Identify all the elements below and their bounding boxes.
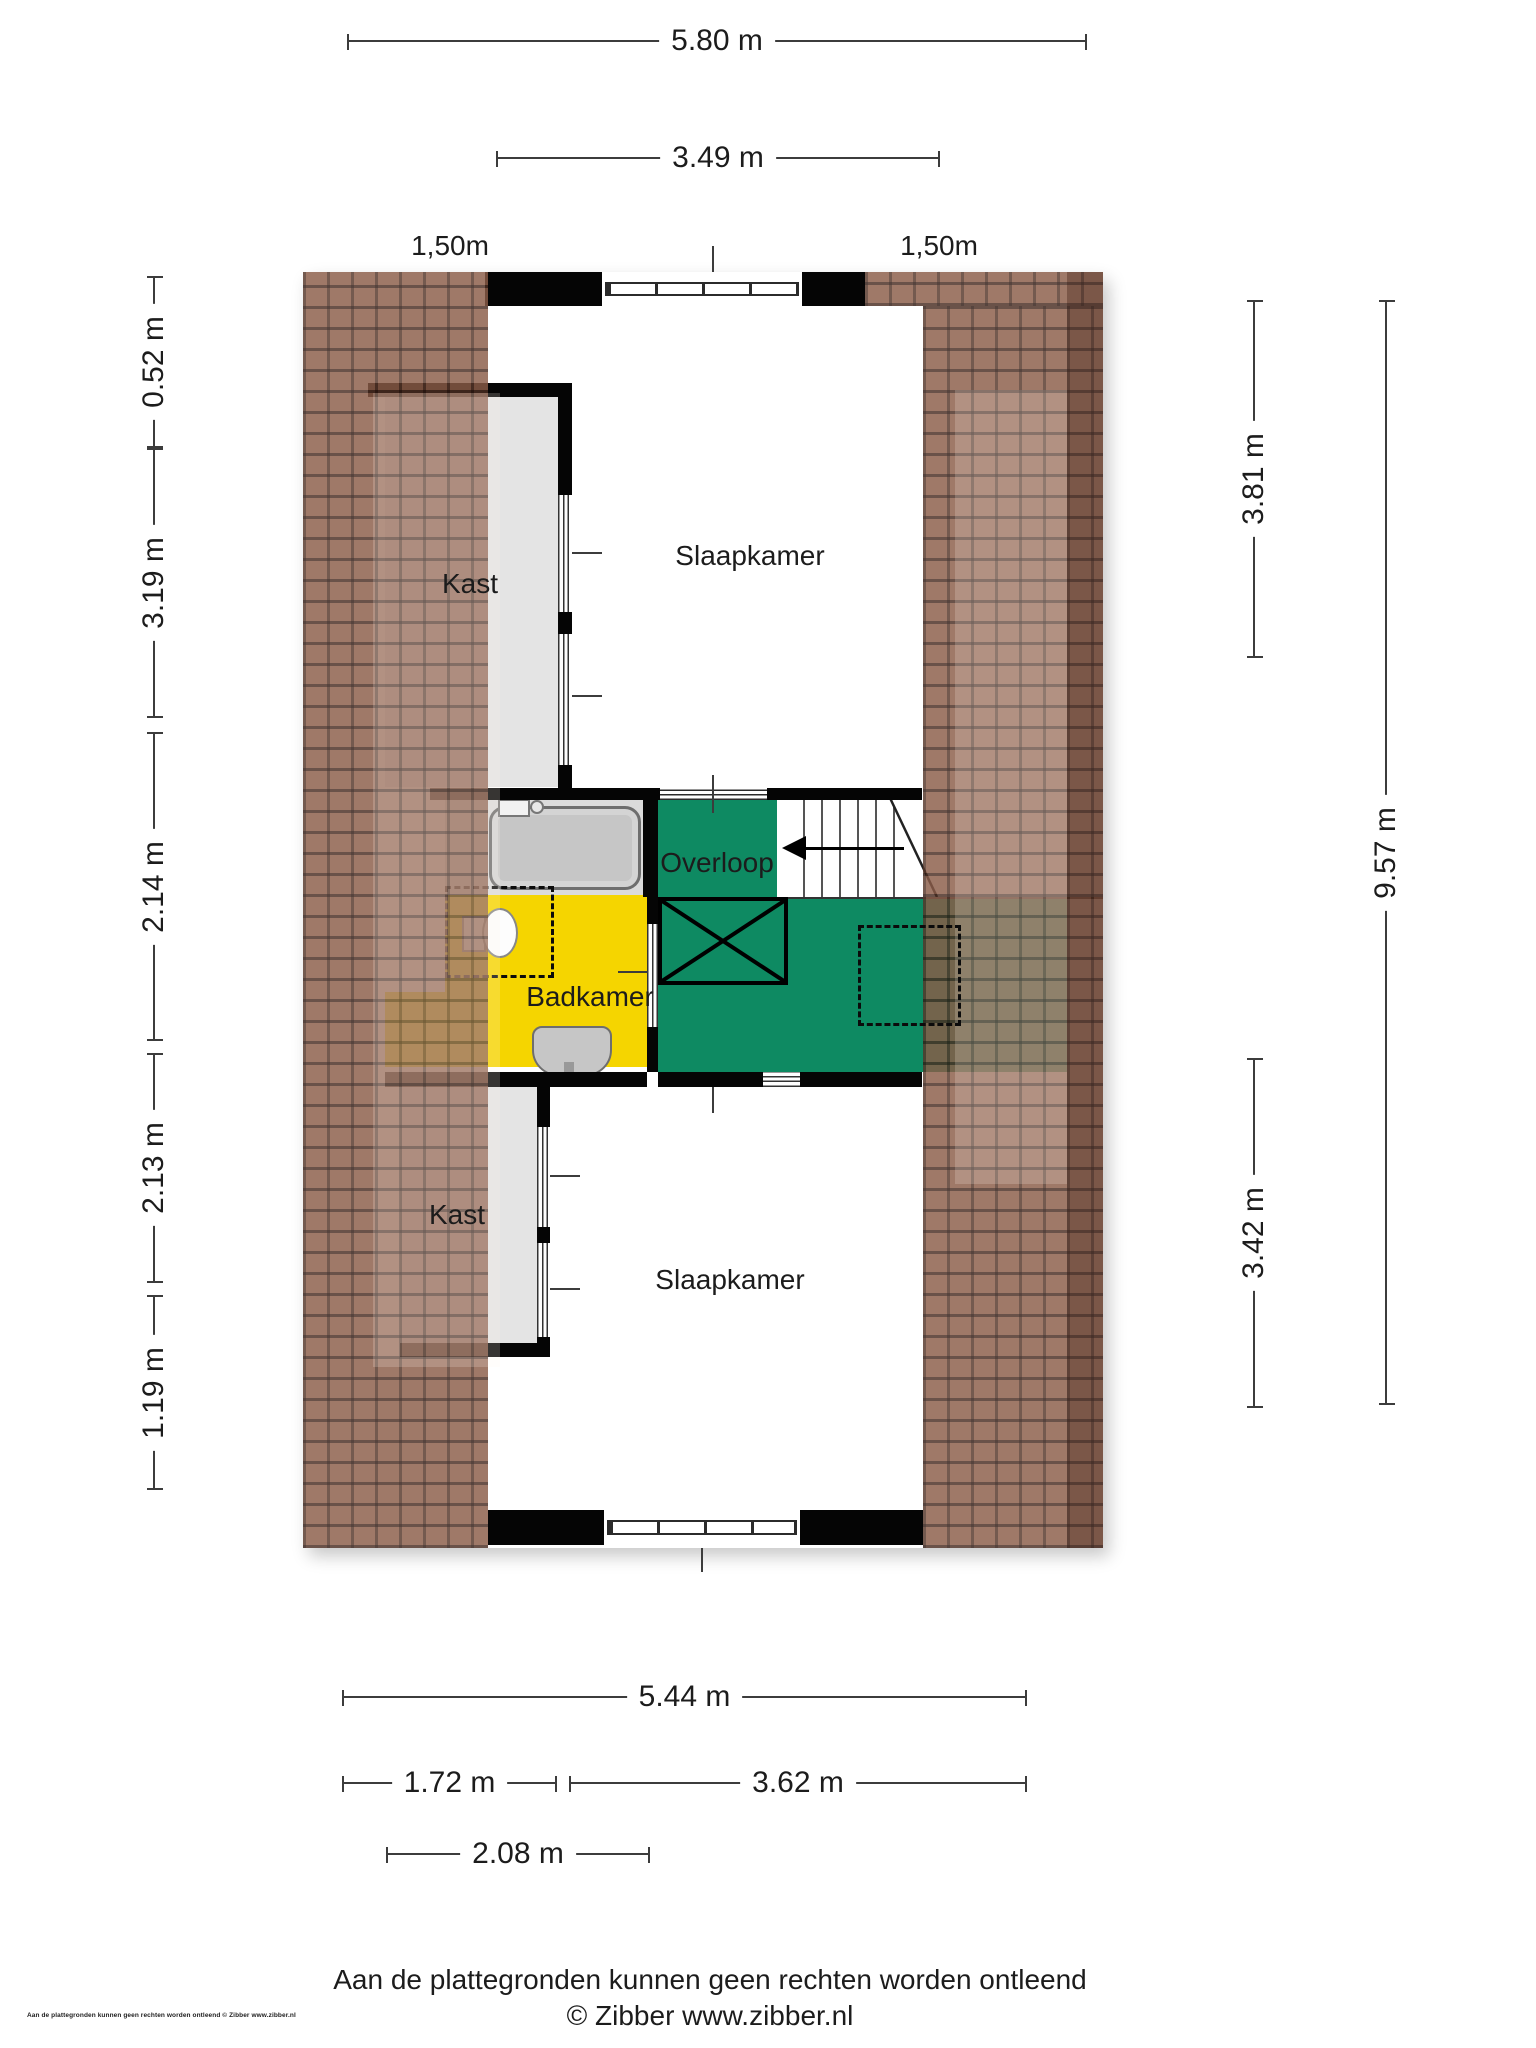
label-slaapkamer-bottom: Slaapkamer	[655, 1264, 804, 1296]
kast-bottom-door-tick-1	[550, 1175, 580, 1177]
window-top	[602, 272, 802, 306]
dimension-label: 3.42 m	[1235, 1175, 1273, 1291]
void-cross-icon	[662, 901, 784, 981]
wall-middle-top-right	[767, 788, 922, 800]
dimension-label: 1.72 m	[392, 1766, 508, 1800]
wall-badkamer-right-b	[647, 1027, 658, 1072]
kast-top-door-tick-1	[572, 552, 602, 554]
wall-bottom-left	[488, 1510, 604, 1545]
dimension-label: 5.44 m	[627, 1680, 743, 1714]
dimension-label: 3.62 m	[740, 1766, 856, 1800]
dimension-label: 3.19 m	[135, 525, 173, 641]
dimension-right-bottom: 3.42 m	[1253, 1058, 1255, 1408]
window-bottom-center-tick	[701, 1548, 703, 1572]
dimension-left-1: 0.52 m	[153, 276, 155, 448]
dimension-label: 1.19 m	[135, 1335, 173, 1451]
corner-disclaimer: Aan de plattegronden kunnen geen rechten…	[27, 2012, 296, 2019]
kast-bottom-door-1	[537, 1127, 550, 1227]
kast-top-door-2	[558, 634, 572, 765]
wall-kast2-right-b	[537, 1227, 550, 1243]
kast-bottom-door-tick-2	[550, 1288, 580, 1290]
stair-direction-arrow-tail	[806, 847, 904, 850]
dimension-bottom-left: 1.72 m	[342, 1782, 557, 1784]
window-top-center-tick	[712, 246, 714, 272]
dimension-label: 2.08 m	[460, 1837, 576, 1871]
stair-direction-arrow-icon	[782, 836, 806, 860]
dimension-label: 2.13 m	[135, 1110, 173, 1226]
dimension-label: 2.14 m	[135, 829, 173, 945]
wall-kast-right-b	[558, 612, 572, 634]
dimension-label: 3.49 m	[660, 141, 776, 175]
wall-bottom-right	[800, 1510, 923, 1545]
dimension-left-4: 2.13 m	[153, 1053, 155, 1283]
label-slaapkamer-top: Slaapkamer	[675, 540, 824, 572]
floorplan-canvas: Slaapkamer Kast Overloop Badkamer Kast S…	[0, 0, 1536, 2048]
dimension-right-total: 9.57 m	[1385, 300, 1387, 1405]
badkamer-door-tick	[618, 971, 648, 973]
footer: Aan de plattegronden kunnen geen rechten…	[240, 1962, 1180, 2034]
dimension-left-2: 3.19 m	[153, 448, 155, 718]
dimension-bottom-total: 5.44 m	[342, 1696, 1027, 1698]
dimension-label: 9.57 m	[1367, 795, 1405, 911]
kast-top-door-1	[558, 495, 572, 612]
label-badkamer: Badkamer	[526, 981, 654, 1013]
bathtub	[489, 806, 641, 890]
middle-bottom-tick	[712, 1087, 714, 1113]
wall-middle-bottom-right	[800, 1072, 922, 1087]
dimension-left-5: 1.19 m	[153, 1295, 155, 1490]
roof-tiles-right-ridge	[1067, 272, 1103, 1548]
wall-kast-right-a	[558, 383, 572, 495]
dimension-top-window: 3.49 m	[496, 157, 940, 159]
dimension-roof-right: 1,50m	[900, 230, 978, 262]
bathtub-faucet-knob	[530, 800, 544, 814]
dimension-top-total: 5.80 m	[347, 40, 1087, 42]
label-kast-top: Kast	[442, 568, 498, 600]
dimension-label: 5.80 m	[659, 24, 775, 58]
dimension-left-3: 2.14 m	[153, 732, 155, 1041]
bathtub-faucet	[498, 799, 530, 817]
kast-bottom-door-2	[537, 1243, 550, 1337]
footer-credit: © Zibber www.zibber.nl	[240, 1998, 1180, 2034]
overloop-south-door	[763, 1072, 800, 1087]
wall-kast2-right-a	[537, 1087, 550, 1127]
headroom-dashed-outline-overloop	[858, 925, 961, 1026]
wall-top-right	[802, 272, 865, 306]
kast-top-door-tick-2	[572, 695, 602, 697]
window-bottom	[604, 1510, 800, 1545]
dimension-label: 3.81 m	[1235, 421, 1273, 537]
dimension-label: 0.52 m	[135, 304, 173, 420]
overloop-window-tick	[712, 775, 714, 813]
room-slaapkamer-bottom	[550, 1087, 923, 1508]
label-overloop: Overloop	[660, 847, 774, 879]
wall-middle-bottom-center	[658, 1072, 763, 1087]
wall-top-left	[485, 272, 602, 306]
dimension-right-top: 3.81 m	[1253, 300, 1255, 658]
wall-tub-overloop	[643, 800, 658, 897]
label-kast-bottom: Kast	[429, 1199, 485, 1231]
dimension-bottom-kast: 2.08 m	[386, 1853, 650, 1855]
stair-void	[658, 897, 788, 985]
footer-disclaimer: Aan de plattegronden kunnen geen rechten…	[240, 1962, 1180, 1998]
roof-tiles-right-highlight	[955, 390, 1067, 1184]
dimension-bottom-right: 3.62 m	[569, 1782, 1027, 1784]
wall-badkamer-right-a	[647, 895, 658, 924]
dimension-roof-left: 1,50m	[411, 230, 489, 262]
